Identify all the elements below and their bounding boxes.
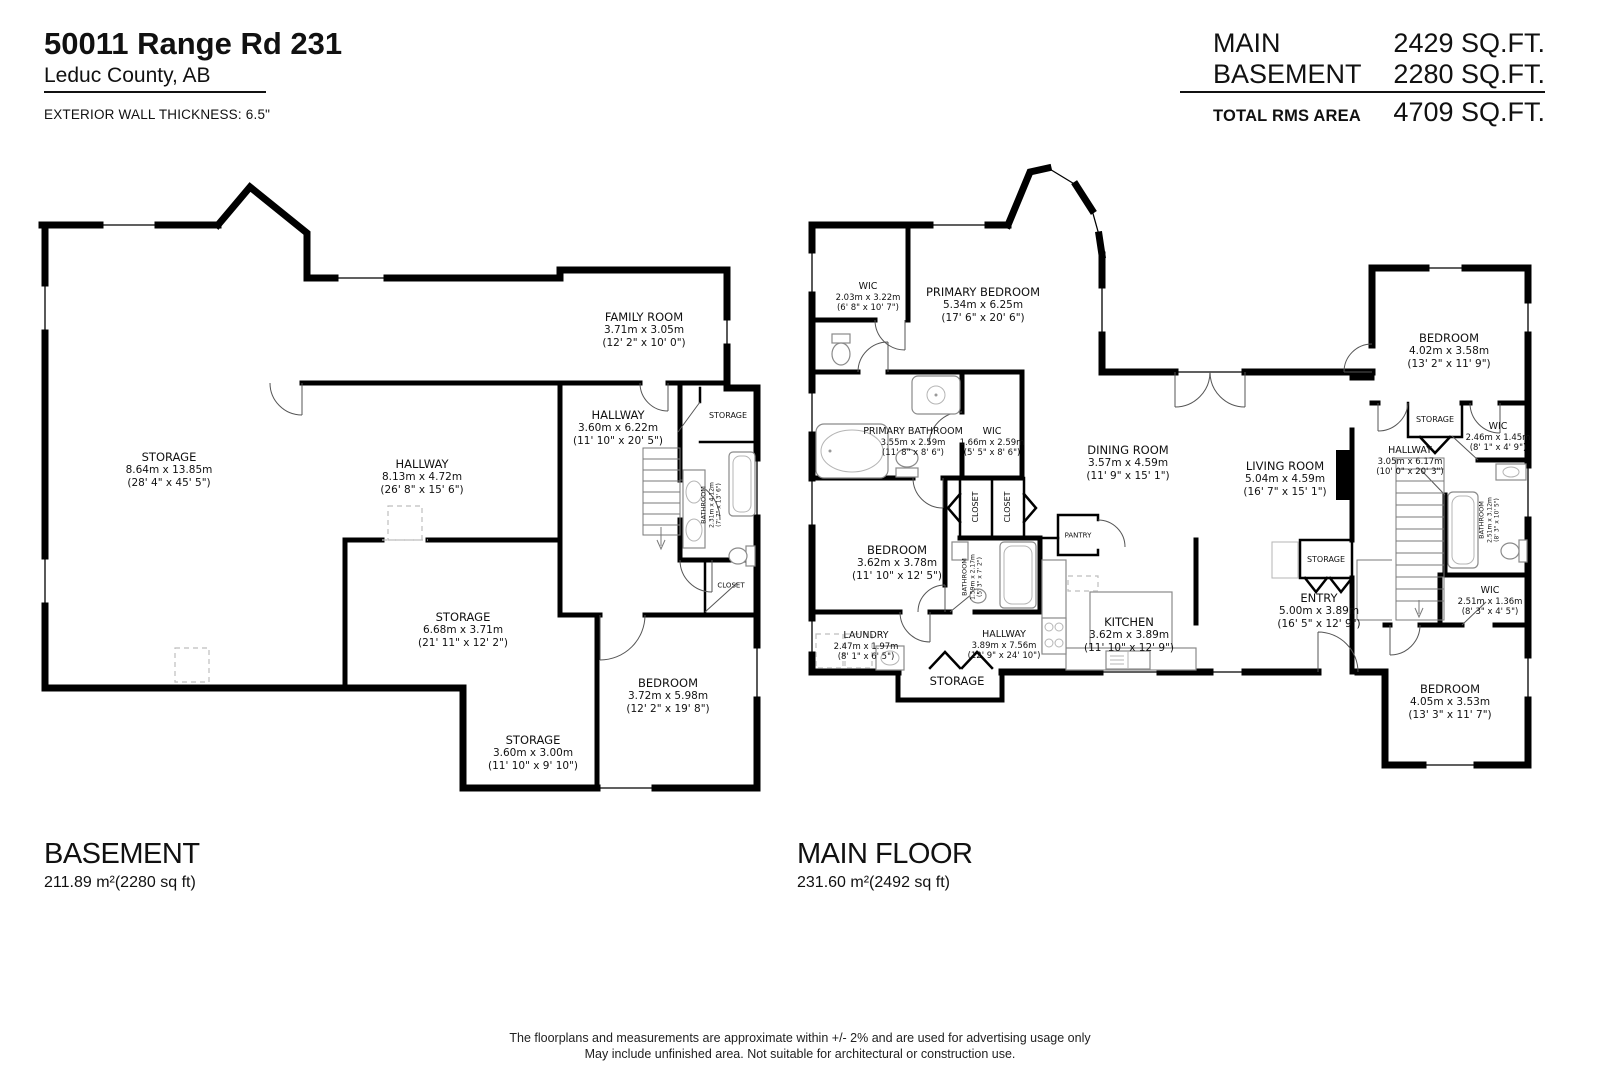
room-label-bedroom-br: BEDROOM 4.05m x 3.53m (13' 3" x 11' 7") <box>1408 682 1491 722</box>
wall-thickness-note: EXTERIOR WALL THICKNESS: 6.5" <box>44 107 342 122</box>
disclaimer-line1: The floorplans and measurements are appr… <box>0 1030 1600 1046</box>
area-label: BASEMENT <box>1213 59 1362 90</box>
basement-stairs <box>643 448 680 549</box>
room-label-wic-primary: WIC 2.03m x 3.22m (6' 8" x 10' 7") <box>836 281 901 313</box>
room-label-storage-entry: STORAGE <box>1307 555 1345 565</box>
toilet-icon <box>832 343 850 365</box>
basement-interior-walls <box>302 383 757 788</box>
floorplan-page: 50011 Range Rd 231 Leduc County, AB EXTE… <box>0 0 1600 1069</box>
stove-icon <box>1042 618 1066 654</box>
entry-closet-bifold-icon <box>1305 578 1352 592</box>
basement-utility-markers <box>175 506 422 682</box>
room-label-wic-166: WIC 1.66m x 2.59m (5' 5" x 8' 6") <box>960 426 1025 458</box>
room-label-hallway-basement-2: HALLWAY 3.60m x 6.22m (11' 10" x 20' 5") <box>573 408 663 448</box>
room-label-wic-251: WIC 2.51m x 1.36m (8' 3" x 4' 5") <box>1458 585 1523 617</box>
page-subtitle: Leduc County, AB <box>44 64 266 93</box>
room-label-bathroom-right: BATHROOM 2.51m x 3.12m (8' 3" x 10' 5") <box>1479 497 1502 543</box>
room-label-storage-360: STORAGE 3.60m x 3.00m (11' 10" x 9' 10") <box>488 733 578 773</box>
fridge-icon <box>1068 576 1098 591</box>
toilet-tank <box>832 334 850 343</box>
floorplan-drawing <box>0 0 1600 1069</box>
main-floor-title-block: MAIN FLOOR 231.60 m²(2492 sq ft) <box>797 838 972 892</box>
basement-title: BASEMENT <box>44 838 200 871</box>
area-value: 2429 SQ.FT. <box>1393 28 1545 59</box>
room-label-storage-668: STORAGE 6.68m x 3.71m (21' 11" x 12' 2") <box>418 610 508 650</box>
disclaimer-line2: May include unfinished area. Not suitabl… <box>0 1046 1600 1062</box>
room-label-hallway-main: HALLWAY 3.89m x 7.56m (12' 9" x 24' 10") <box>968 629 1041 661</box>
room-label-kitchen: KITCHEN 3.62m x 3.89m (11' 10" x 12' 9") <box>1084 615 1174 655</box>
area-summary: MAIN 2429 SQ.FT. BASEMENT 2280 SQ.FT. TO… <box>1180 28 1545 128</box>
toilet-tank <box>1519 540 1527 562</box>
room-label-bedroom-tr: BEDROOM 4.02m x 3.58m (13' 2" x 11' 9") <box>1407 331 1490 371</box>
toilet-tank <box>896 468 918 477</box>
room-label-wic-246: WIC 2.46m x 1.45m (8' 1" x 4' 9") <box>1466 421 1531 453</box>
page-title: 50011 Range Rd 231 <box>44 26 342 62</box>
room-label-living-room: LIVING ROOM 5.04m x 4.59m (16' 7" x 15' … <box>1243 459 1326 499</box>
toilet-icon <box>729 548 747 564</box>
area-label: MAIN <box>1213 28 1281 59</box>
total-label: TOTAL RMS AREA <box>1213 107 1361 126</box>
basement-area: 211.89 m²(2280 sq ft) <box>44 874 200 892</box>
main-floor-title: MAIN FLOOR <box>797 838 972 871</box>
main-stairs <box>1357 458 1444 620</box>
room-label-laundry: LAUNDRY 2.47m x 1.97m (8' 1" x 6' 5") <box>834 630 899 662</box>
main-floor-area: 231.60 m²(2492 sq ft) <box>797 874 972 892</box>
header: 50011 Range Rd 231 Leduc County, AB EXTE… <box>44 26 342 122</box>
area-row-total: TOTAL RMS AREA 4709 SQ.FT. <box>1180 97 1545 128</box>
area-row-main: MAIN 2429 SQ.FT. <box>1180 28 1545 59</box>
room-label-closet-1: CLOSET <box>971 491 981 522</box>
room-label-closet-basement: CLOSET <box>717 582 744 591</box>
bathtub-icon <box>1000 542 1036 608</box>
divider <box>1180 91 1545 93</box>
room-label-pantry: PANTRY <box>1065 532 1092 541</box>
vanity-counter <box>1496 464 1526 480</box>
basement-title-block: BASEMENT 211.89 m²(2280 sq ft) <box>44 838 200 892</box>
room-label-storage-large: STORAGE 8.64m x 13.85m (28' 4" x 45' 5") <box>126 450 213 490</box>
room-label-storage-tr: STORAGE <box>1416 415 1454 425</box>
room-label-hallway-basement: HALLWAY 8.13m x 4.72m (26' 8" x 15' 6") <box>380 457 463 497</box>
room-label-bathroom-basement: BATHROOM 2.31m x 4.12m (7' 7" x 13' 6") <box>701 482 724 528</box>
room-label-dining-room: DINING ROOM 3.57m x 4.59m (11' 9" x 15' … <box>1086 443 1169 483</box>
room-label-bedroom-mid: BEDROOM 3.62m x 3.78m (11' 10" x 12' 5") <box>852 543 942 583</box>
room-label-bathroom-small: BATHROOM 1.59m x 2.17m (5' 3" x 7' 2") <box>962 554 985 600</box>
room-label-bedroom-basement: BEDROOM 3.72m x 5.98m (12' 2" x 19' 8") <box>626 676 709 716</box>
area-value: 2280 SQ.FT. <box>1393 59 1545 90</box>
room-label-primary-bathroom: PRIMARY BATHROOM 3.55m x 2.59m (11' 8" x… <box>863 426 963 458</box>
entry-bench <box>1272 542 1298 578</box>
room-label-hallway-right: HALLWAY 3.05m x 6.17m (10' 0" x 20' 3") <box>1376 445 1443 477</box>
room-label-primary-bedroom: PRIMARY BEDROOM 5.34m x 6.25m (17' 6" x … <box>926 285 1040 325</box>
total-value: 4709 SQ.FT. <box>1393 97 1545 128</box>
room-label-storage-small: STORAGE <box>709 411 747 421</box>
room-label-closet-2: CLOSET <box>1003 491 1013 522</box>
disclaimer: The floorplans and measurements are appr… <box>0 1030 1600 1063</box>
room-label-entry: ENTRY 5.00m x 3.89m (16' 5" x 12' 9") <box>1277 591 1360 631</box>
room-label-storage-center: STORAGE <box>930 674 985 688</box>
room-label-family-room: FAMILY ROOM 3.71m x 3.05m (12' 2" x 10' … <box>602 310 685 350</box>
toilet-icon <box>1501 543 1519 559</box>
fireplace <box>1336 450 1352 500</box>
area-row-basement: BASEMENT 2280 SQ.FT. <box>1180 59 1545 90</box>
